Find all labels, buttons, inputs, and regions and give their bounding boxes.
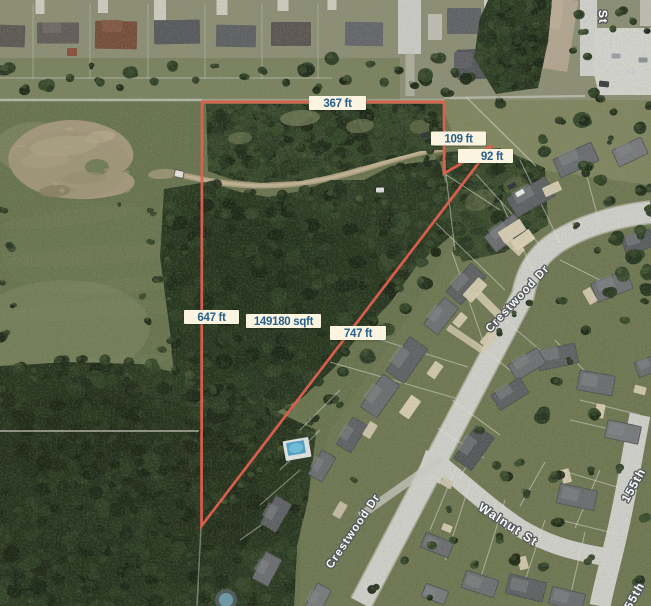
svg-text:St: St (596, 10, 610, 24)
svg-text:149180 sqft: 149180 sqft (254, 316, 314, 328)
svg-text:647 ft: 647 ft (197, 312, 226, 324)
svg-text:109 ft: 109 ft (444, 133, 473, 145)
svg-text:367 ft: 367 ft (323, 98, 352, 110)
svg-text:747 ft: 747 ft (344, 328, 373, 340)
svg-text:92 ft: 92 ft (481, 151, 504, 163)
